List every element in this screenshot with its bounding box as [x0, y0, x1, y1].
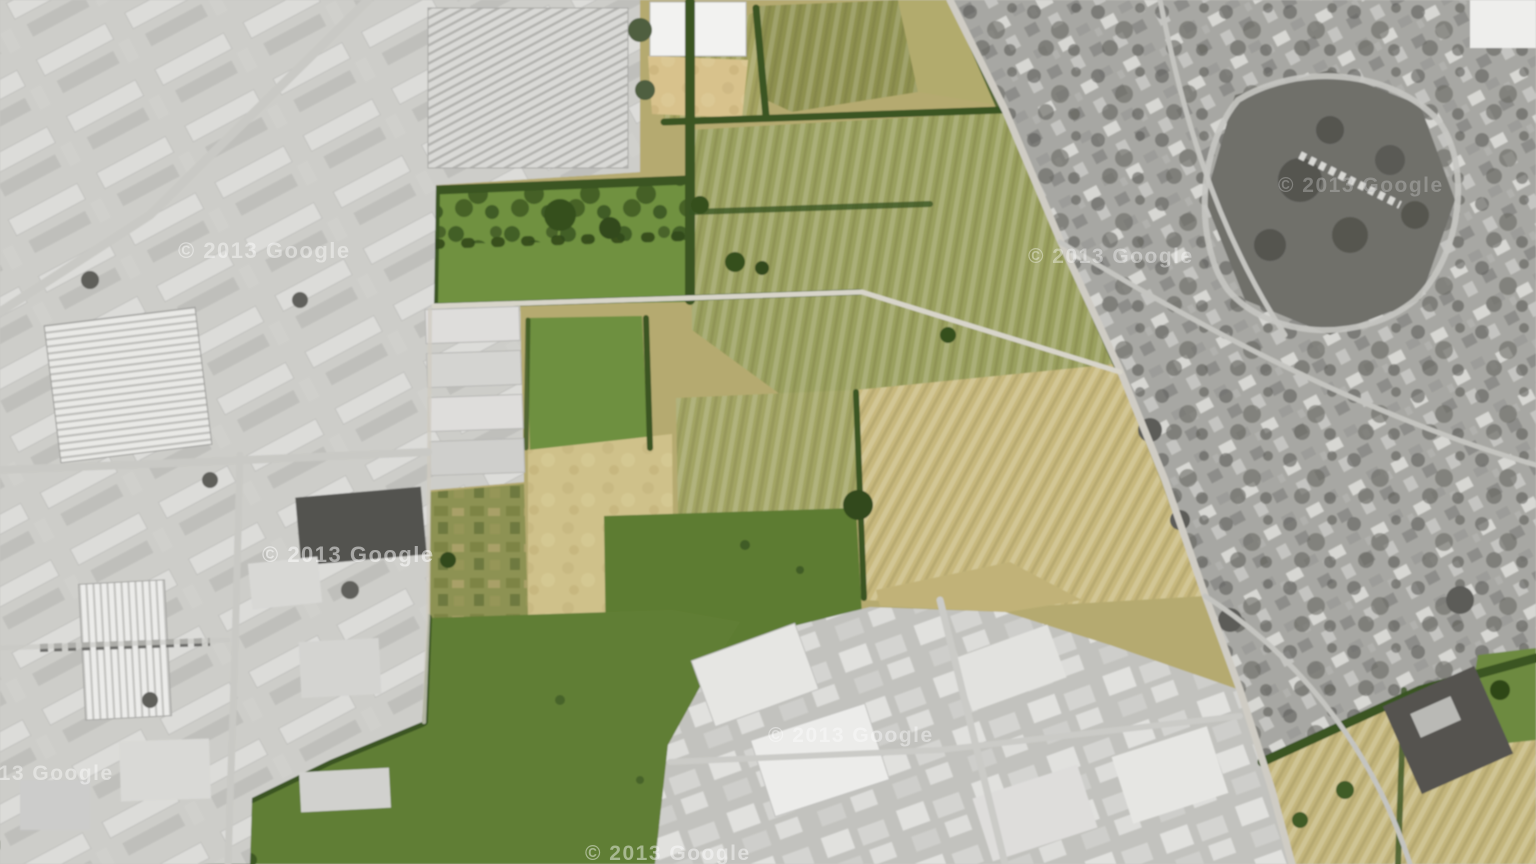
tree — [81, 271, 99, 289]
crop-rows — [756, 0, 918, 112]
google-watermark: © 2013 Google — [178, 238, 351, 263]
tree — [1446, 586, 1474, 614]
white-building — [1470, 0, 1536, 48]
meadow — [526, 316, 648, 450]
tree — [796, 566, 804, 574]
google-watermark: © 2013 Google — [0, 762, 114, 785]
white-warehouse — [650, 2, 746, 56]
distribution-warehouse — [44, 307, 212, 462]
park-trees — [1254, 229, 1286, 261]
satellite-imagery: © 2013 Google © 2013 Google © 2013 Googl… — [0, 0, 1536, 864]
tree — [142, 692, 158, 708]
building — [20, 780, 90, 830]
building — [299, 768, 391, 813]
park-trees — [1316, 116, 1344, 144]
google-watermark: © 2013 Google — [1278, 174, 1444, 197]
tree — [202, 472, 218, 488]
google-watermark: © 2013 Google — [585, 842, 751, 864]
satellite-map-viewport[interactable]: © 2013 Google © 2013 Google © 2013 Googl… — [0, 0, 1536, 864]
tree — [740, 540, 750, 550]
factory-complex — [428, 8, 628, 168]
allotment-plots — [430, 484, 528, 620]
tree — [628, 18, 652, 42]
building — [299, 638, 382, 698]
google-watermark: © 2013 Google — [768, 724, 934, 747]
tree — [341, 581, 359, 599]
park-trees — [1401, 201, 1429, 229]
sandy-texture — [648, 56, 748, 118]
google-watermark: © 2013 Google — [1028, 245, 1194, 268]
park-trees — [1332, 217, 1368, 253]
google-watermark: © 2013 Google — [262, 542, 435, 567]
park-trees — [1375, 145, 1405, 175]
tree — [1490, 680, 1510, 700]
crop-rows — [676, 390, 862, 514]
tree — [1336, 781, 1354, 799]
tree — [1292, 812, 1308, 828]
tree — [292, 292, 308, 308]
tree — [555, 695, 565, 705]
tree — [636, 776, 644, 784]
building — [119, 738, 211, 801]
tree — [635, 80, 655, 100]
